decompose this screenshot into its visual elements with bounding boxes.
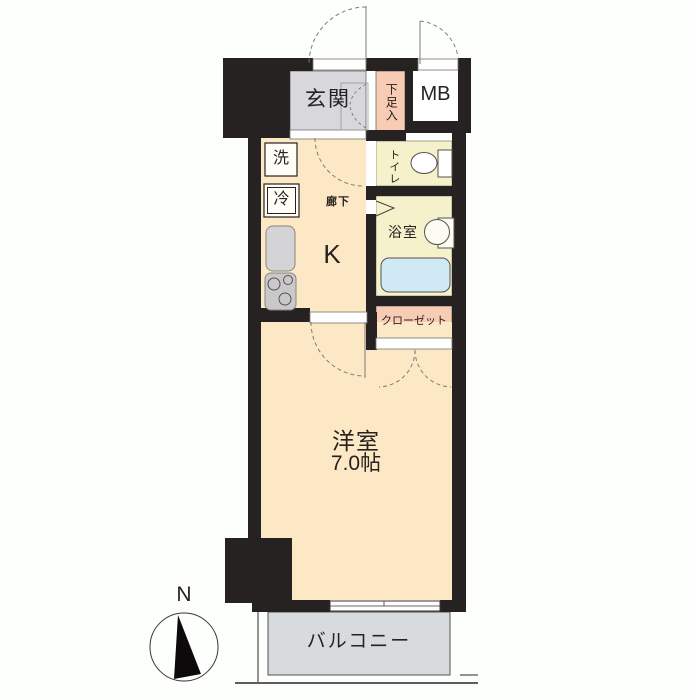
wall-bath-closet: [376, 296, 452, 306]
wall-bottom: [252, 600, 330, 612]
western-room-name: 洋室: [332, 429, 380, 453]
wall-mb-bottom: [405, 121, 458, 133]
toilet-label: トイレ: [385, 145, 401, 189]
wall: [366, 213, 376, 312]
western-room-size: 7.0帖: [331, 453, 381, 475]
balcony-window: [330, 601, 440, 611]
wall: [366, 130, 406, 141]
balcony-label: バルコニー: [268, 612, 450, 672]
entrance-door-arc: [309, 7, 366, 64]
entrance-opening: [313, 59, 366, 70]
shoe-box-label: 下足入: [378, 74, 404, 130]
north-needle: [174, 615, 201, 679]
wall-bottom: [440, 600, 454, 612]
hallway-label: 廊下: [316, 196, 360, 210]
bathroom-label: 浴室: [385, 224, 421, 241]
wall-right: [452, 133, 466, 612]
wall: [366, 185, 376, 200]
floorplan: 玄関 下足入 MB 洗 冷 廊下 K トイレ 浴室 クローゼット 洋室 7.0帖…: [0, 0, 694, 700]
bathtub-icon: [381, 258, 450, 292]
wall-block-top-left: [223, 58, 290, 138]
closet-label: クローゼット: [376, 306, 452, 338]
wall-left: [248, 138, 261, 540]
mb-opening: [418, 59, 458, 70]
meter-box-label: MB: [413, 80, 458, 108]
compass-icon: [150, 613, 218, 681]
wall-block-bottom-left: [225, 538, 292, 603]
toilet-doorway: [366, 141, 376, 186]
stove-icon: [265, 273, 296, 310]
fridge-label: 冷: [264, 184, 299, 217]
genkan-label: 玄関: [290, 71, 366, 130]
kitchen-label: K: [312, 239, 352, 271]
mb-door-arc: [420, 21, 458, 57]
closet-opening: [376, 338, 452, 349]
wall-right-top: [458, 58, 471, 133]
room-doorway: [310, 312, 367, 323]
genkan-sill: [290, 130, 366, 139]
washer-label: 洗: [265, 143, 297, 176]
western-room-label: 洋室 7.0帖: [296, 424, 416, 480]
bathroom-doorway: [366, 200, 376, 214]
wall: [405, 58, 413, 121]
kitchen-sink-icon: [266, 226, 295, 271]
compass-north-label: N: [164, 582, 204, 608]
